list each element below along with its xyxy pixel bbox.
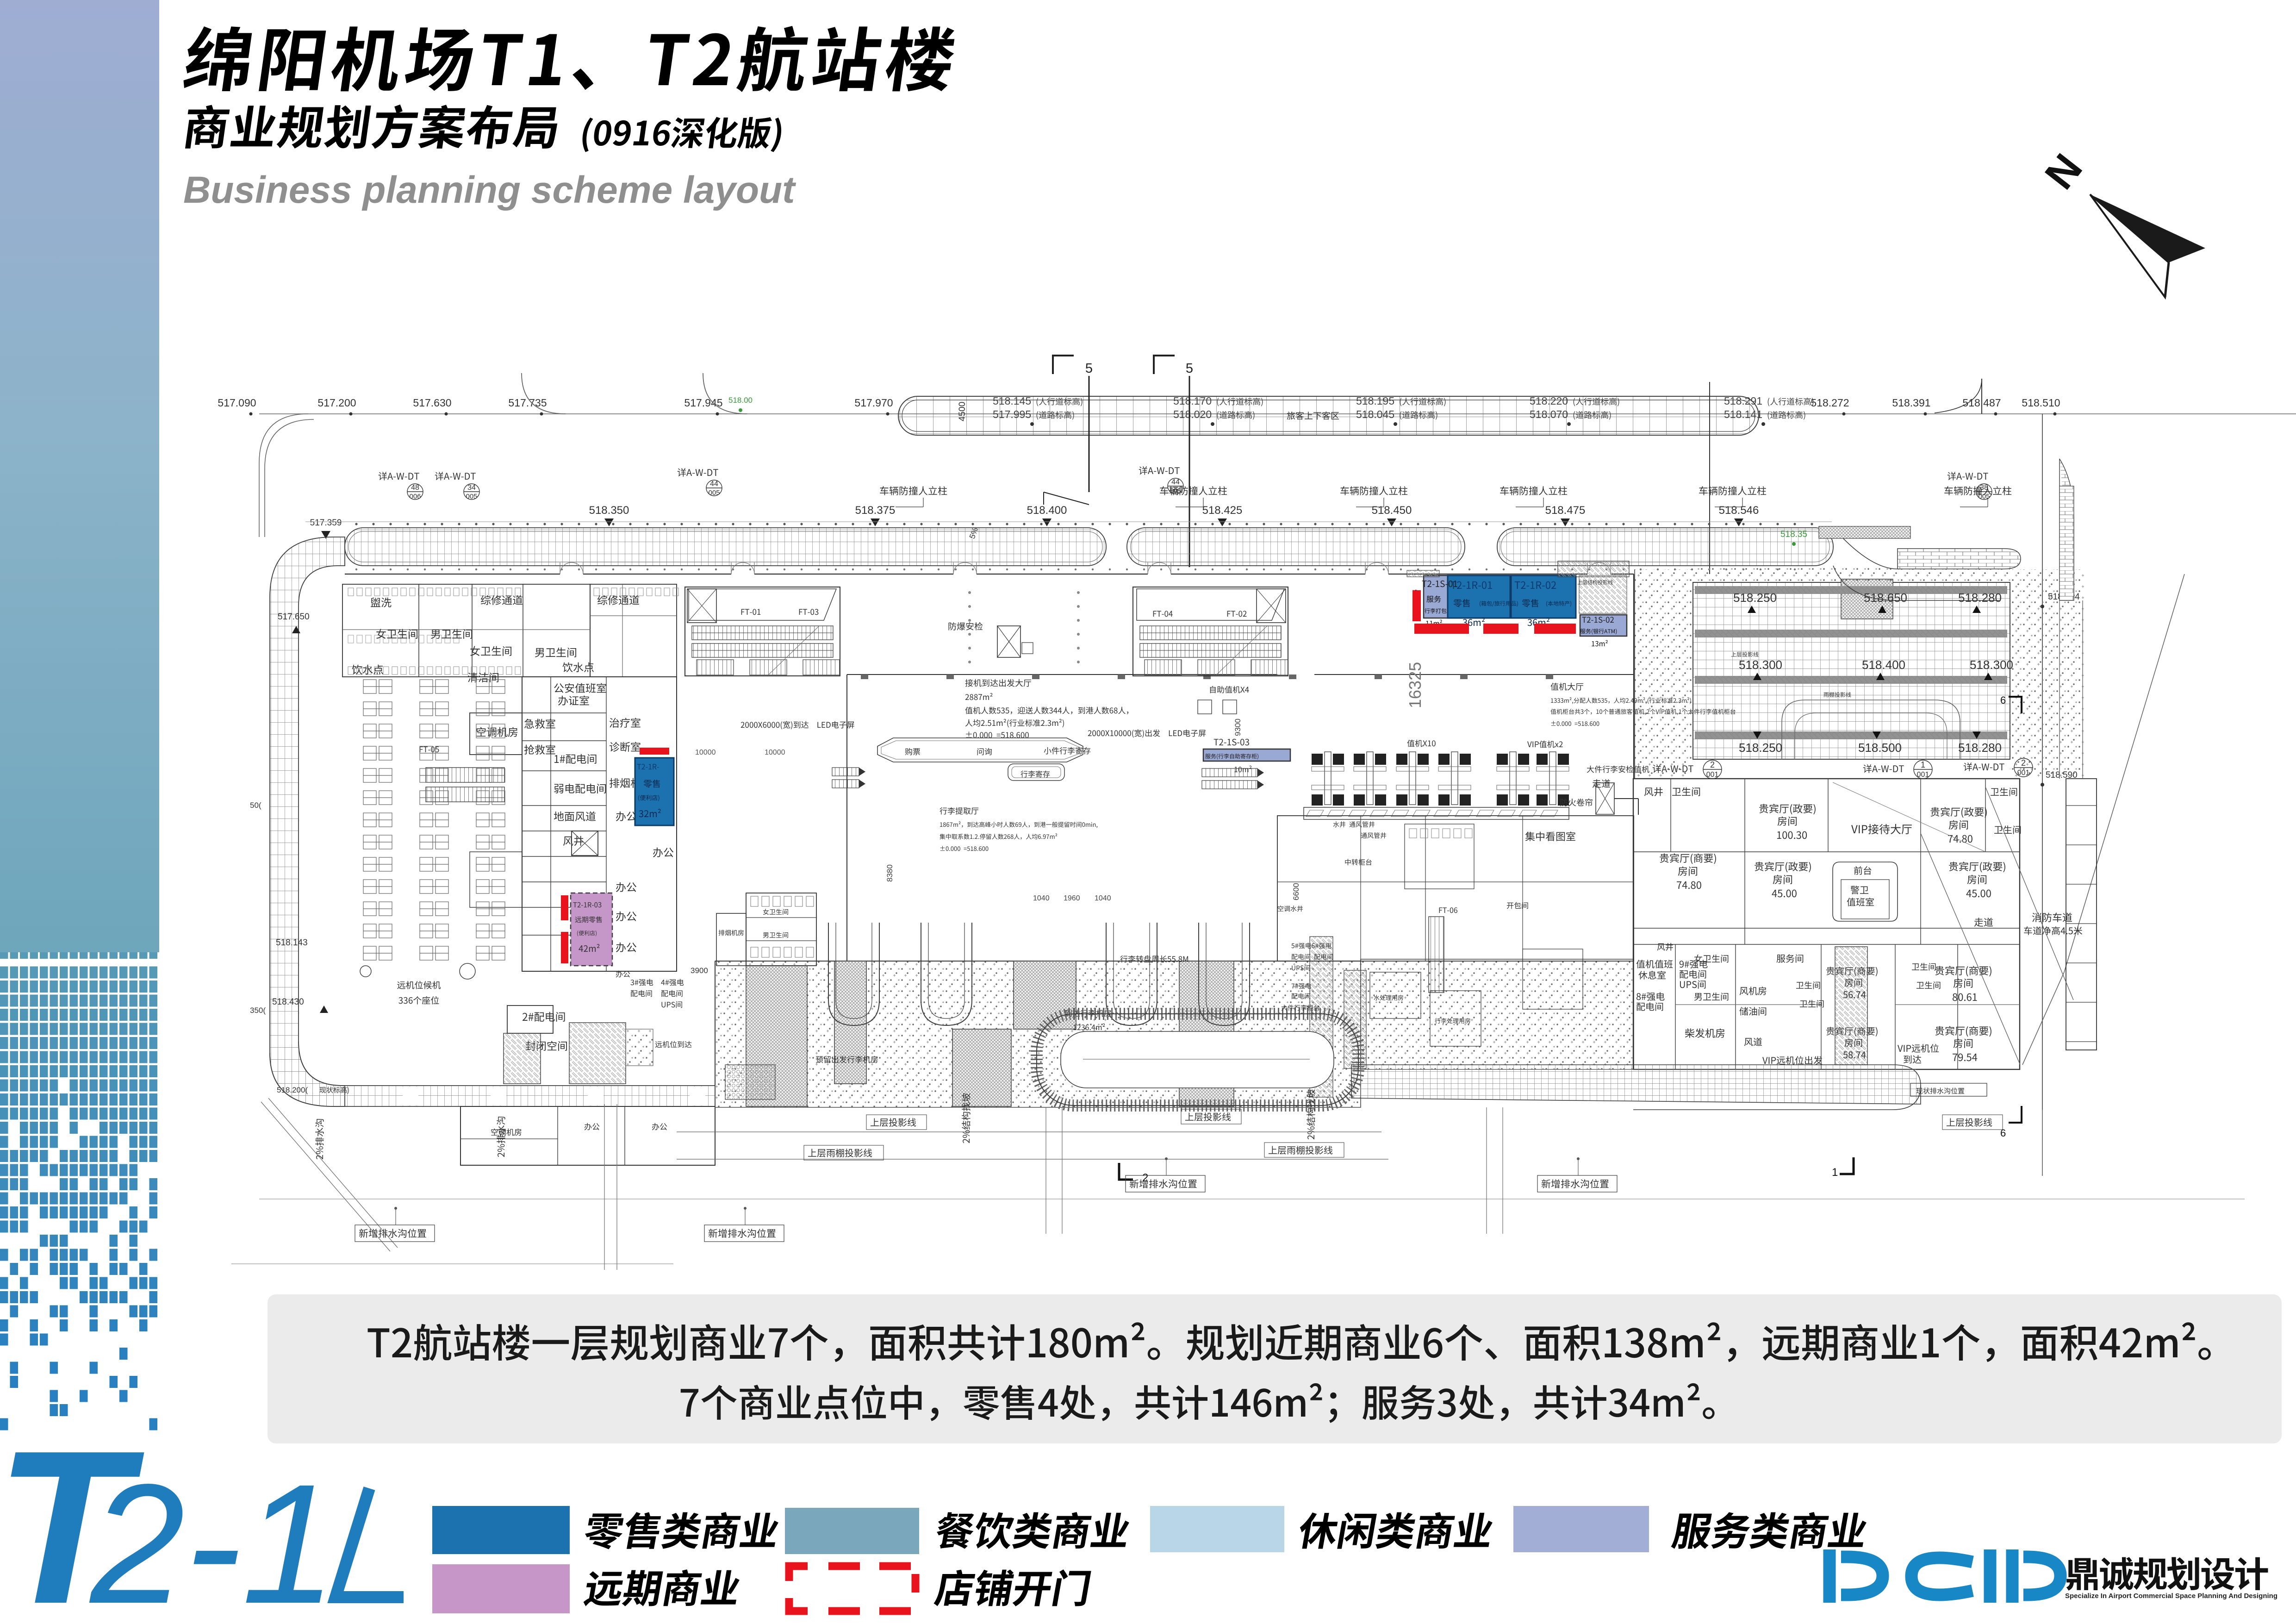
svg-text:005: 005 [1170,487,1181,495]
svg-text:518.430: 518.430 [272,997,304,1007]
svg-text:1040: 1040 [1033,894,1050,902]
svg-text:518.510: 518.510 [2022,397,2060,409]
svg-text:518.250: 518.250 [1739,741,1782,755]
svg-text:4500: 4500 [958,402,967,421]
svg-text:518.272: 518.272 [1811,397,1849,409]
svg-text:517.970: 517.970 [854,397,893,409]
svg-text:518.291: 518.291 [1724,395,1762,407]
svg-text:518.350: 518.350 [589,504,629,517]
svg-text:38: 38 [1980,484,1988,492]
svg-text:518.070: 518.070 [1530,408,1568,420]
svg-text:518.391: 518.391 [1892,397,1930,409]
svg-text:1: 1 [1921,760,1925,769]
svg-text:001: 001 [1917,771,1929,779]
svg-text:Specialize In Airport Commerci: Specialize In Airport Commercial Space P… [2065,1592,2277,1600]
svg-text:Business planning scheme layou: Business planning scheme layout [183,169,796,211]
svg-text:518.35: 518.35 [1780,530,1807,539]
svg-text:005: 005 [1978,493,1990,500]
svg-text:517.200: 517.200 [317,397,356,409]
svg-text:518.375: 518.375 [855,504,896,517]
svg-text:518.500: 518.500 [1858,741,1902,755]
svg-text:518.00: 518.00 [728,396,753,405]
svg-text:517.650: 517.650 [278,612,310,622]
svg-text:518.250: 518.250 [1733,591,1777,605]
svg-text:5: 5 [1085,361,1093,376]
svg-text:48: 48 [411,484,419,492]
svg-text:8380: 8380 [885,864,894,882]
svg-text:518.220: 518.220 [1530,395,1568,407]
svg-text:50(: 50( [250,801,261,810]
svg-text:517.630: 517.630 [413,397,451,409]
svg-text:518.450: 518.450 [1372,504,1412,517]
svg-text:518.300: 518.300 [1970,658,2013,672]
svg-text:34: 34 [467,484,476,492]
svg-text:517.735: 517.735 [508,397,547,409]
svg-text:518.300: 518.300 [1739,658,1782,672]
svg-text:3900: 3900 [691,966,708,975]
svg-text:1960: 1960 [1064,894,1080,902]
svg-text:518.425: 518.425 [1202,504,1243,517]
svg-text:518.143: 518.143 [276,938,308,948]
svg-text:518.145: 518.145 [993,395,1031,407]
svg-text:518.141: 518.141 [1724,408,1762,420]
svg-text:518.400: 518.400 [1027,504,1067,517]
svg-text:1040: 1040 [1095,894,1111,902]
svg-text:005: 005 [466,493,477,500]
svg-text:518.400: 518.400 [1862,658,1905,672]
svg-text:518.170: 518.170 [1173,395,1212,407]
svg-text:44: 44 [710,480,718,488]
svg-text:44: 44 [1171,478,1180,486]
svg-text:10000: 10000 [695,749,716,756]
svg-text:517.090: 517.090 [218,397,256,409]
svg-text:5: 5 [1186,361,1193,376]
svg-text:6: 6 [2000,1127,2006,1139]
svg-text:518.546: 518.546 [1719,504,1759,517]
svg-text:001: 001 [1706,771,1719,779]
svg-text:2-1: 2-1 [87,1449,336,1624]
svg-text:518.280: 518.280 [1958,741,2002,755]
svg-text:518.195: 518.195 [1356,395,1394,407]
svg-text:517.359: 517.359 [310,518,342,528]
svg-text:2: 2 [1710,760,1715,769]
svg-text:517.995: 517.995 [993,408,1031,420]
svg-text:16325: 16325 [1406,662,1425,708]
svg-text:10000: 10000 [765,749,785,756]
svg-text:005: 005 [708,489,720,497]
svg-text:518.020: 518.020 [1173,408,1212,420]
svg-text:350(: 350( [250,1006,266,1015]
svg-text:1: 1 [1832,1166,1838,1179]
svg-text:9300: 9300 [1233,718,1242,736]
svg-text:6600: 6600 [1292,883,1300,900]
svg-text:006: 006 [409,493,421,500]
svg-text:518.045: 518.045 [1356,408,1394,420]
svg-text:517.945: 517.945 [684,397,722,409]
svg-text:6: 6 [2000,694,2006,706]
svg-text:518.475: 518.475 [1545,504,1586,517]
svg-text:518.280: 518.280 [1958,591,2002,605]
